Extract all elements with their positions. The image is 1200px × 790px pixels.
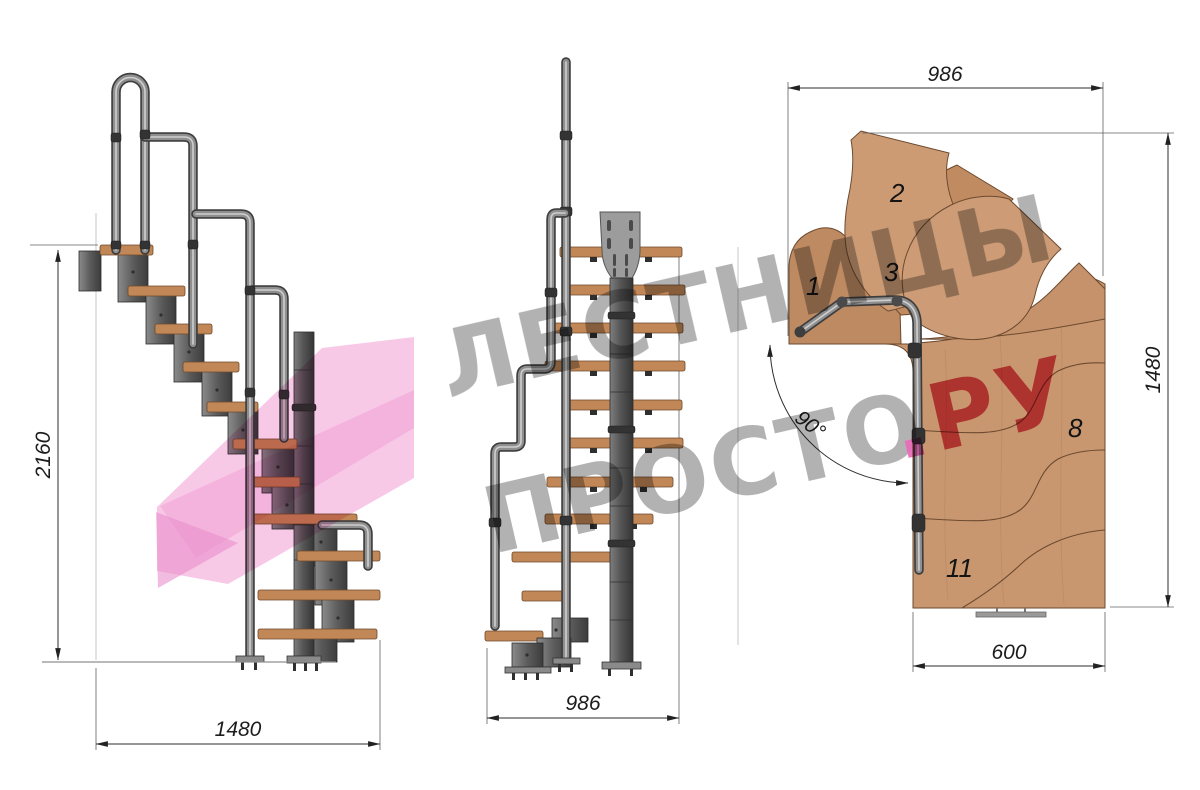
watermark-line2-gray: ПРОСТО	[473, 370, 935, 575]
dim-label-2160: 2160	[32, 431, 55, 479]
side-dim-height: 2160	[30, 245, 98, 660]
page: { "document": { "type": "staircase-assem…	[0, 0, 1200, 790]
dim-label-986-front: 986	[565, 692, 600, 715]
dim-label-1480-side: 1480	[215, 718, 262, 741]
dim-label-600: 600	[991, 641, 1026, 664]
handrail-loop	[116, 78, 145, 251]
dim-label-1480-plan: 1480	[1142, 346, 1165, 393]
dim-label-986-plan: 986	[927, 63, 962, 86]
front-modules	[505, 618, 588, 680]
plan-foot-plate	[976, 608, 1046, 617]
step-number-11: 11	[946, 553, 973, 583]
technical-drawing: 2160 1480	[0, 0, 1200, 790]
wall-bracket	[79, 251, 101, 291]
step-number-2: 2	[889, 178, 905, 208]
plan-dim-bottom: 600	[913, 612, 1105, 672]
